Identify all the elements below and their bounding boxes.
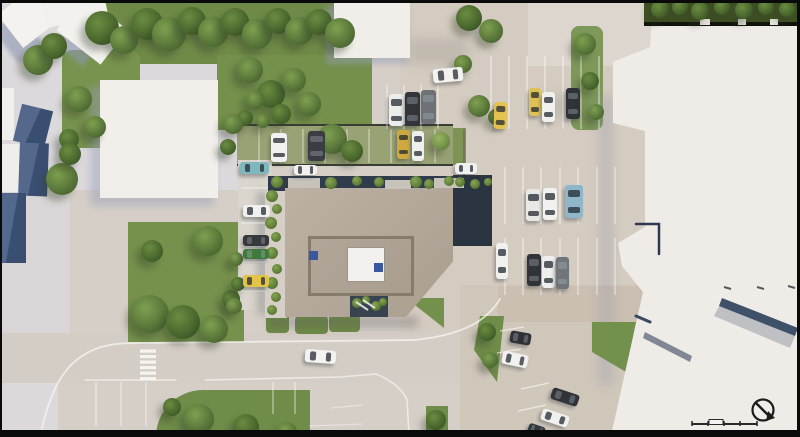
planter-shrub xyxy=(267,305,277,315)
tree xyxy=(588,104,604,120)
tree xyxy=(226,298,242,314)
car-window xyxy=(568,190,581,197)
planter-shrub xyxy=(271,176,283,188)
tree xyxy=(479,19,503,43)
car-white-row1-a xyxy=(526,189,541,221)
car-window xyxy=(423,95,434,102)
car-window xyxy=(558,262,567,268)
planter-shrub xyxy=(352,298,362,308)
car-dark-left xyxy=(243,235,269,246)
car-window xyxy=(273,138,285,144)
tree xyxy=(220,139,236,155)
tree xyxy=(246,91,264,109)
tree xyxy=(482,352,498,368)
car-window xyxy=(391,99,402,105)
roof-blue-hatch-1 xyxy=(309,251,318,260)
car-window xyxy=(528,194,539,200)
tree xyxy=(46,163,78,195)
aerial-site-plan-render xyxy=(0,0,800,437)
terrace-planter-box-2 xyxy=(385,180,411,189)
planter-shrub xyxy=(470,179,480,189)
car-white-driving-top xyxy=(432,67,463,84)
hedge-gap-1 xyxy=(700,19,710,25)
car-white-paver-2 xyxy=(412,131,424,161)
planter-shrub xyxy=(410,176,422,188)
car-window xyxy=(529,259,539,265)
car-window xyxy=(544,97,553,103)
car-window xyxy=(558,279,567,284)
car-window xyxy=(310,351,317,361)
car-window xyxy=(505,353,512,363)
tree xyxy=(237,57,263,83)
tree xyxy=(297,92,321,116)
tree xyxy=(131,295,169,333)
planter-shrub xyxy=(379,298,387,306)
car-window xyxy=(247,207,252,216)
car-window xyxy=(496,106,506,112)
tree xyxy=(256,114,270,128)
planter-shrub xyxy=(325,177,337,189)
car-gold-paver xyxy=(397,130,410,159)
car-white-van xyxy=(496,243,508,279)
car-window xyxy=(568,109,578,114)
car-window xyxy=(247,237,252,245)
car-window xyxy=(399,135,408,141)
car-window xyxy=(423,113,434,118)
car-window xyxy=(407,97,418,104)
car-teal-left xyxy=(240,162,269,174)
car-window xyxy=(470,165,474,173)
car-white-row1-b xyxy=(543,188,557,220)
car-window xyxy=(261,237,265,245)
car-window xyxy=(544,112,553,117)
tree xyxy=(200,315,228,343)
car-window xyxy=(261,207,265,216)
car-dark-row2 xyxy=(527,254,541,286)
hedge-gap-2 xyxy=(738,19,746,25)
car-window xyxy=(247,277,252,286)
tree xyxy=(779,1,795,17)
tree xyxy=(59,143,81,165)
car-yellow-left xyxy=(243,275,269,287)
car-white-left xyxy=(243,205,270,217)
car-window xyxy=(414,136,423,142)
frame-edge-bottom xyxy=(0,430,800,437)
planter-shrub xyxy=(271,232,281,242)
frame-edge-left xyxy=(0,0,2,437)
car-window xyxy=(391,116,402,121)
tree xyxy=(163,398,181,416)
tree xyxy=(432,132,450,150)
tree xyxy=(478,323,496,341)
car-window xyxy=(545,210,555,215)
car-window xyxy=(544,278,553,283)
planter-shrub xyxy=(352,176,362,186)
car-window xyxy=(453,69,459,79)
frame-edge-top xyxy=(0,0,800,3)
car-window xyxy=(568,93,578,99)
car-black-2 xyxy=(566,88,580,119)
car-window xyxy=(326,352,332,362)
car-window xyxy=(407,115,418,120)
car-window xyxy=(568,207,581,212)
car-window xyxy=(247,250,252,257)
tree xyxy=(271,104,291,124)
planter-shrub xyxy=(362,296,370,304)
car-green-left xyxy=(243,249,269,259)
car-white xyxy=(389,94,404,126)
blue-roof-house-3 xyxy=(0,193,26,263)
tree xyxy=(193,226,223,256)
planter-shrub xyxy=(484,178,492,186)
car-window xyxy=(414,151,423,156)
car-window xyxy=(399,150,408,155)
car-window xyxy=(531,107,540,111)
car-window xyxy=(310,151,322,156)
tree xyxy=(229,252,243,266)
car-window xyxy=(528,211,539,216)
car-window xyxy=(310,166,314,173)
small-white-building-2 xyxy=(0,144,20,192)
planter-shrub xyxy=(265,217,277,229)
car-white-row2 xyxy=(542,256,555,288)
planter-shrub xyxy=(444,176,454,186)
car-white-terrace xyxy=(294,165,317,175)
car-window xyxy=(459,165,463,173)
tree xyxy=(426,410,446,430)
car-window xyxy=(245,164,251,173)
car-window xyxy=(498,267,507,273)
car-window xyxy=(495,120,505,125)
car-window xyxy=(523,334,528,343)
tree xyxy=(166,305,200,339)
car-window xyxy=(519,356,525,366)
car-white-paver xyxy=(271,133,287,162)
car-window xyxy=(261,250,265,257)
tree xyxy=(691,2,709,20)
car-window xyxy=(498,249,507,256)
car-window xyxy=(531,92,540,98)
tree xyxy=(468,95,490,117)
shadow-main-building-bottom xyxy=(268,316,418,328)
roof-blue-hatch-2 xyxy=(374,263,383,272)
planter-shrub xyxy=(271,292,281,302)
tree xyxy=(456,5,482,31)
car-window xyxy=(261,277,265,286)
planter-shrub xyxy=(272,264,282,274)
car-yellow-2 xyxy=(529,88,541,116)
tree xyxy=(141,240,163,262)
tree xyxy=(341,140,363,162)
blue-roof-house-2 xyxy=(18,143,49,197)
tree xyxy=(574,33,596,55)
planter-shrub xyxy=(266,190,278,202)
tree xyxy=(735,1,753,19)
planter-shrub xyxy=(424,179,434,189)
car-window xyxy=(260,164,265,173)
car-gray-row2 xyxy=(556,257,569,289)
terrace-planter-box-1 xyxy=(288,178,320,188)
car-white-corner xyxy=(455,163,477,174)
car-window xyxy=(437,70,444,81)
car-window xyxy=(545,193,555,199)
car-window xyxy=(513,332,519,341)
hedge-gap-3 xyxy=(770,19,778,25)
car-window xyxy=(529,276,539,281)
car-white-on-road xyxy=(305,349,337,364)
paver-strip-curb-top xyxy=(237,124,453,126)
car-window xyxy=(545,411,553,421)
planter-shrub xyxy=(455,177,465,187)
planter-shrub xyxy=(374,177,384,187)
car-window xyxy=(558,415,565,425)
car-blue-suv xyxy=(565,185,583,218)
car-window xyxy=(273,153,285,158)
shadow-big-building-edge xyxy=(598,95,614,385)
white-building-left xyxy=(100,80,218,198)
tree xyxy=(223,114,243,134)
tree xyxy=(84,116,106,138)
car-window xyxy=(310,136,322,142)
car-yellow xyxy=(494,102,508,129)
car-window xyxy=(568,394,575,404)
car-dark-paver xyxy=(308,131,325,161)
tree xyxy=(282,68,306,92)
tree xyxy=(581,72,599,90)
tree xyxy=(325,18,355,48)
car-gray xyxy=(421,90,436,124)
small-white-building-1 xyxy=(0,88,14,140)
tree xyxy=(66,86,92,112)
planter-shrub xyxy=(272,204,282,214)
car-white-2 xyxy=(542,92,555,122)
car-window xyxy=(555,390,563,400)
ground-taupe-wedge xyxy=(498,286,648,322)
tree xyxy=(41,33,67,59)
car-window xyxy=(298,166,303,173)
car-black xyxy=(405,92,420,126)
car-window xyxy=(544,261,553,267)
